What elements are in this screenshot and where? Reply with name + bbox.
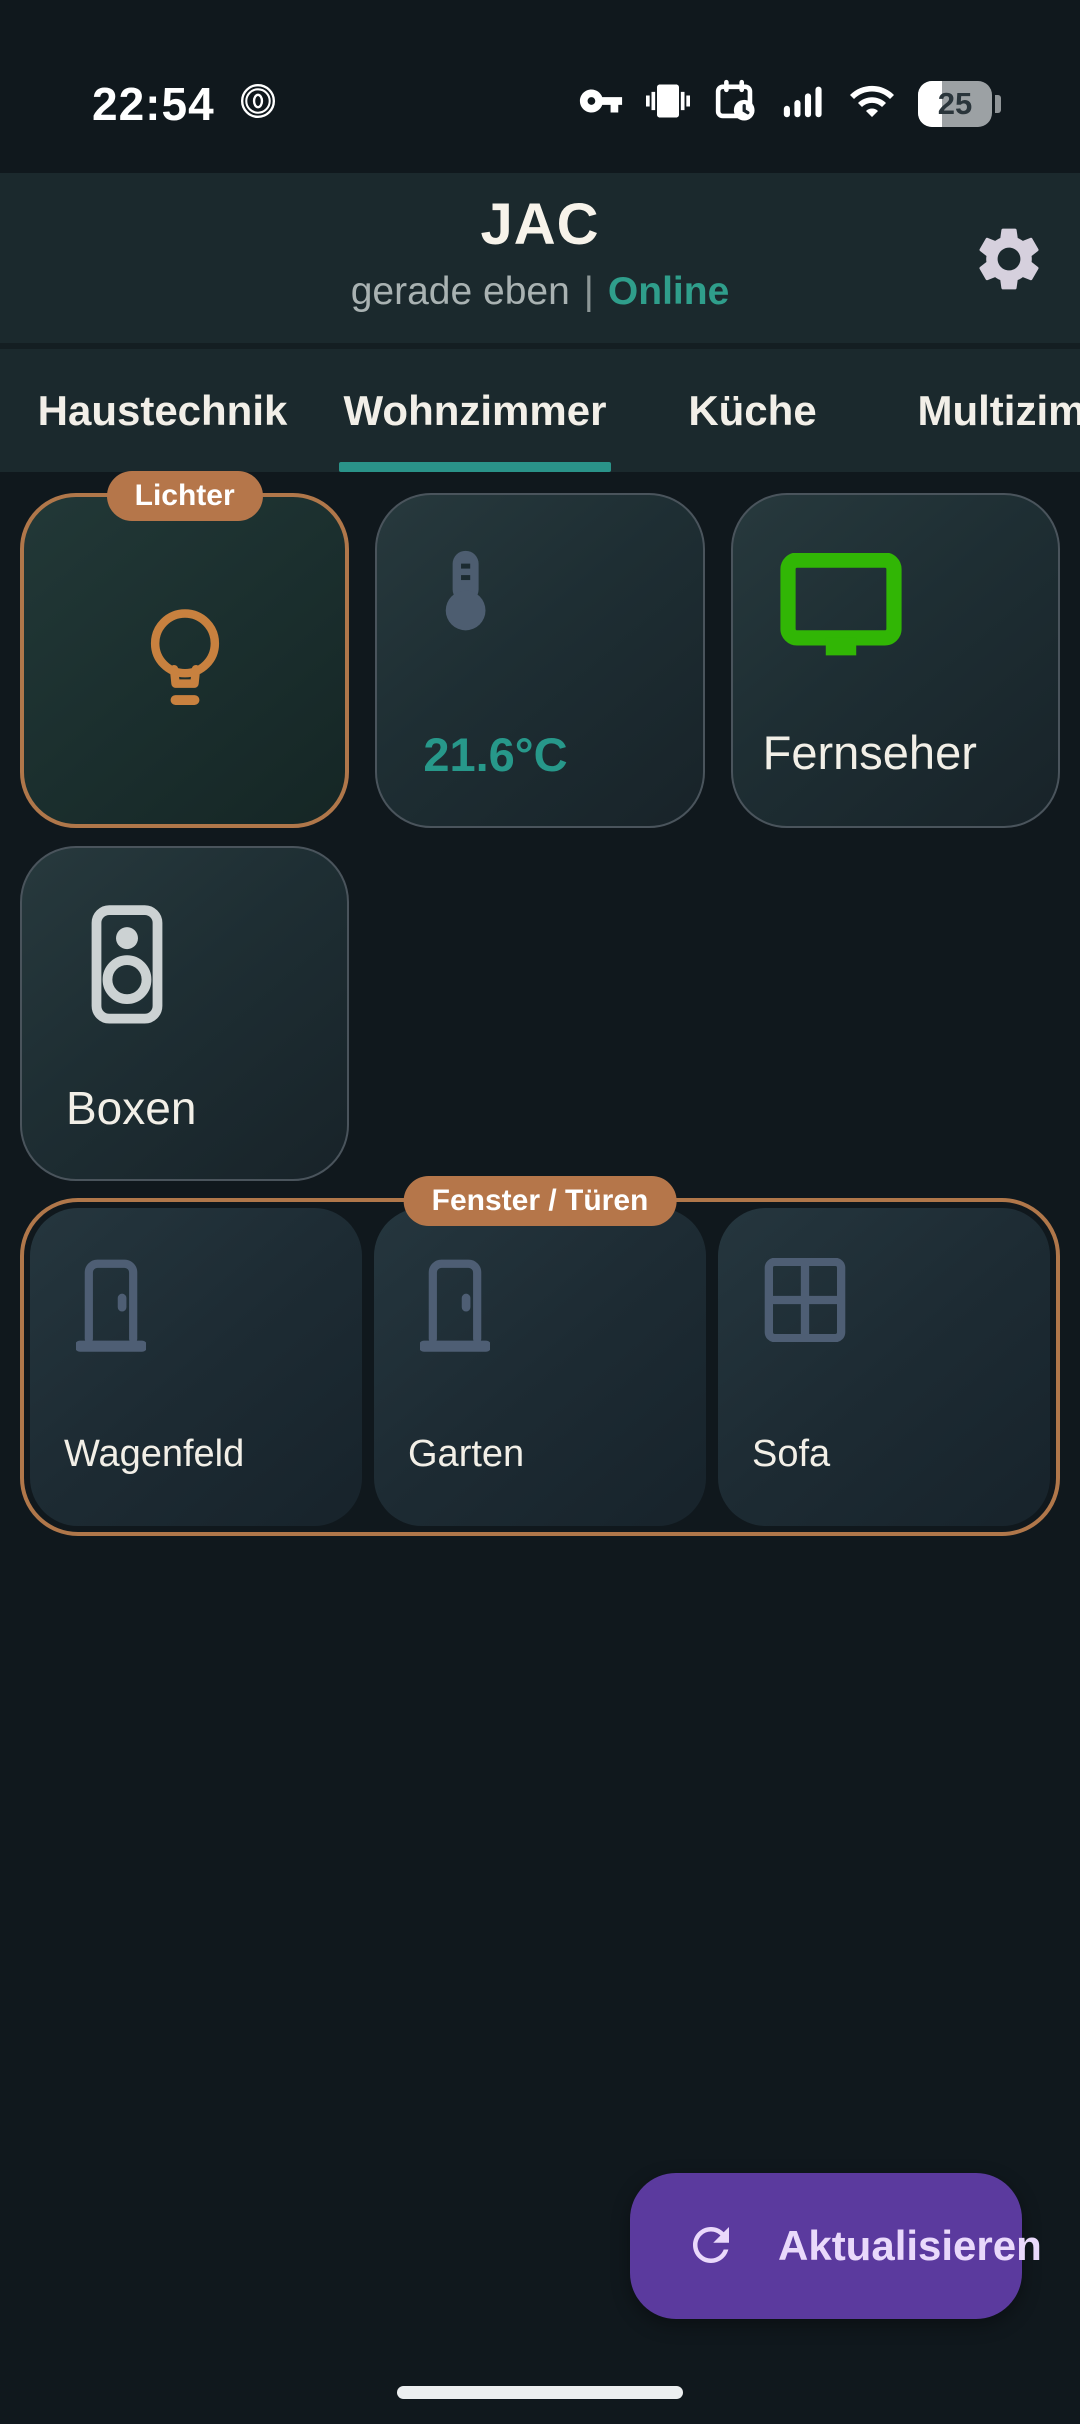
speaker-icon: [88, 904, 166, 1031]
last-seen-text: gerade eben: [351, 270, 570, 313]
tv-icon: [779, 553, 903, 668]
speaker-label: Boxen: [66, 1081, 196, 1135]
status-bar: 22:54: [0, 0, 1080, 173]
refresh-icon: [684, 2218, 738, 2275]
door-icon: [420, 1258, 490, 1357]
tile-label: Sofa: [752, 1433, 830, 1476]
settings-button[interactable]: [968, 219, 1050, 301]
tab-label: Multizimmer: [917, 387, 1080, 435]
refresh-label: Aktualisieren: [778, 2222, 1042, 2270]
tile-row-2: Boxen: [20, 846, 349, 1181]
tab-multizimmer[interactable]: Multizimmer: [880, 349, 1080, 472]
zen-mode-icon: [239, 82, 277, 125]
lichter-badge: Lichter: [107, 471, 263, 521]
clock-time: 22:54: [92, 77, 215, 131]
signal-icon: [780, 78, 826, 129]
door-tile-wagenfeld[interactable]: Wagenfeld: [30, 1208, 362, 1526]
tab-label: Wohnzimmer: [344, 387, 607, 435]
tab-haustechnik[interactable]: Haustechnik: [0, 349, 325, 472]
connection-subtitle: gerade eben|Online: [0, 270, 1080, 314]
tab-label: Küche: [688, 387, 816, 435]
door-icon: [76, 1258, 146, 1357]
tab-wohnzimmer[interactable]: Wohnzimmer: [325, 349, 625, 472]
tab-label: Haustechnik: [38, 387, 288, 435]
temperature-value: 21.6°C: [423, 727, 567, 782]
header: JAC gerade eben|Online: [0, 173, 1080, 343]
wifi-icon: [848, 77, 896, 130]
tab-kueche[interactable]: Küche: [625, 349, 880, 472]
lichter-group-tile[interactable]: Lichter: [20, 493, 349, 828]
home-indicator[interactable]: [397, 2386, 683, 2399]
page-title: JAC: [0, 191, 1080, 258]
tile-row-1: Lichter 21.6°C: [20, 493, 1060, 828]
fenster-tueren-group: Fenster / Türen Wagenfeld Garten: [20, 1198, 1060, 1536]
subtitle-separator: |: [584, 270, 594, 313]
status-bar-left: 22:54: [92, 77, 277, 131]
thermometer-icon: [435, 547, 497, 638]
tile-label: Garten: [408, 1433, 524, 1476]
vibrate-icon: [646, 79, 690, 128]
room-tab-bar: Haustechnik Wohnzimmer Küche Multizimmer: [0, 349, 1080, 472]
window-icon: [764, 1258, 846, 1347]
battery-indicator: 25: [918, 81, 992, 127]
fenster-tueren-badge: Fenster / Türen: [404, 1176, 677, 1226]
battery-percent: 25: [918, 81, 992, 127]
online-status: Online: [608, 270, 729, 313]
tv-label: Fernseher: [763, 725, 977, 780]
window-tile-sofa[interactable]: Sofa: [718, 1208, 1050, 1526]
refresh-button[interactable]: Aktualisieren: [630, 2173, 1022, 2319]
gear-icon: [971, 221, 1047, 300]
calendar-clock-icon: [712, 78, 758, 129]
lightbulb-icon: [140, 607, 230, 714]
status-bar-right: 25: [578, 77, 992, 130]
tile-label: Wagenfeld: [64, 1433, 244, 1476]
tv-tile[interactable]: Fernseher: [731, 493, 1060, 828]
smart-home-app: 22:54: [0, 0, 1080, 2424]
temperature-tile[interactable]: 21.6°C: [375, 493, 704, 828]
door-tile-garten[interactable]: Garten: [374, 1208, 706, 1526]
speaker-tile[interactable]: Boxen: [20, 846, 349, 1181]
active-tab-indicator: [339, 462, 611, 472]
key-icon: [578, 78, 624, 129]
